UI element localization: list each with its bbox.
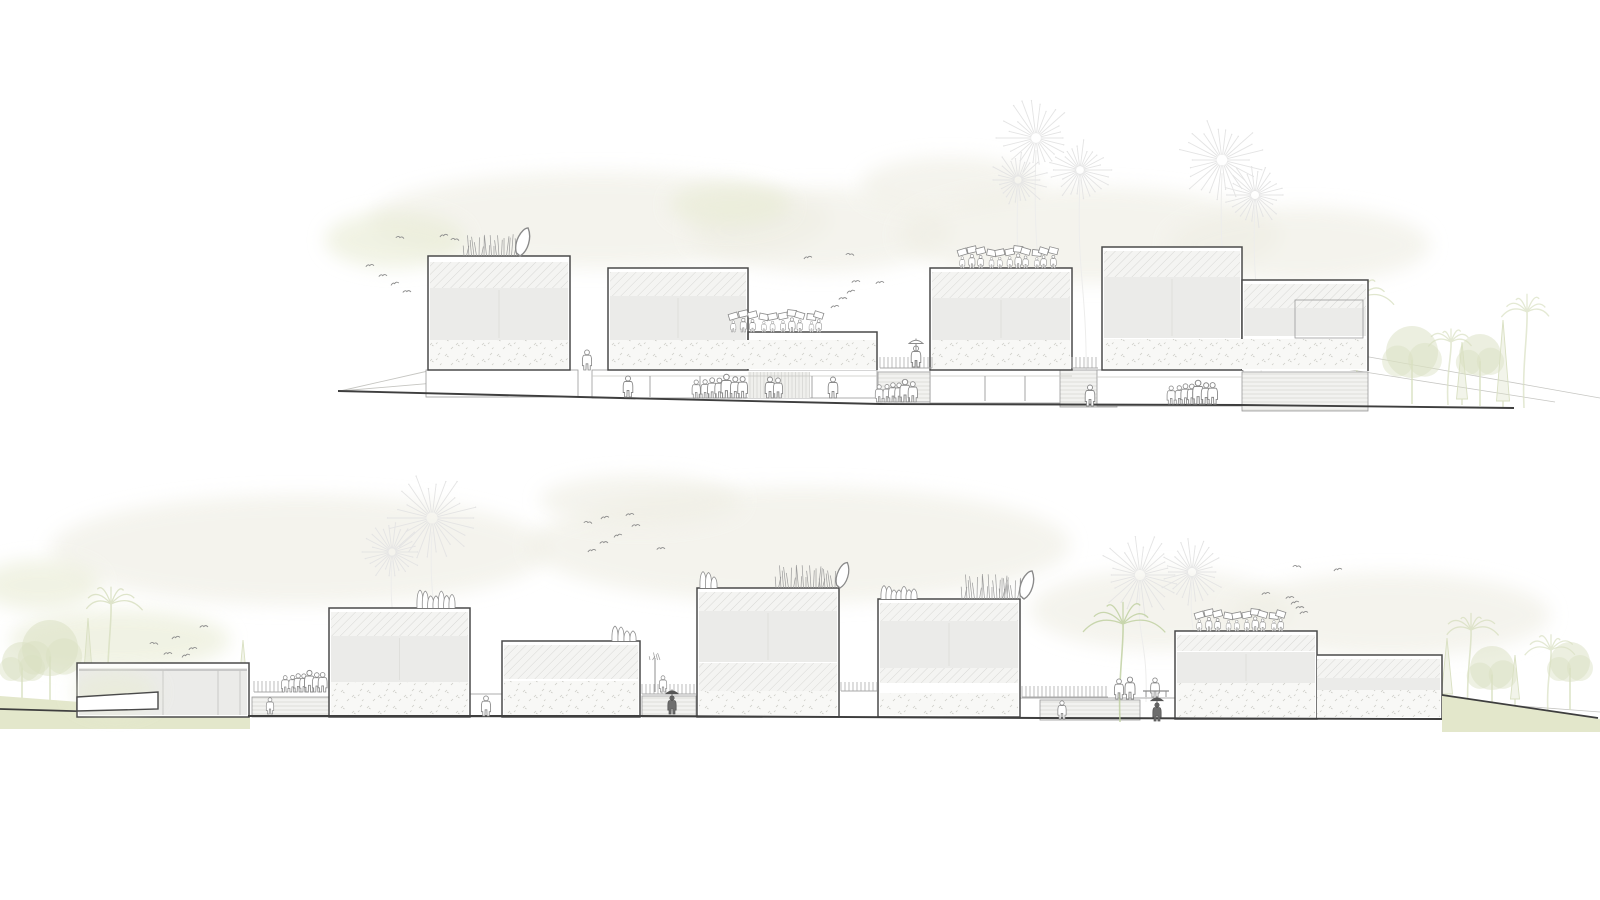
roof-parapet-band — [880, 668, 1018, 683]
background-wash — [540, 475, 740, 525]
bird-icon — [379, 275, 387, 277]
textured-facade-band — [1317, 690, 1440, 717]
roof-parapet-band — [880, 603, 1018, 621]
person-figure — [281, 676, 288, 692]
roof-parapet-band — [699, 663, 837, 691]
tree-icon — [0, 642, 45, 706]
sunken-wall — [252, 697, 330, 717]
top-elevation — [325, 100, 1600, 411]
textured-facade-band — [1177, 683, 1315, 717]
facade-panel — [1317, 678, 1440, 690]
person-figure — [1151, 678, 1160, 697]
textured-facade-band — [430, 340, 568, 369]
roof-figures-with-placards — [728, 310, 824, 332]
person-figure — [318, 673, 327, 692]
roof-parapet-band — [699, 592, 837, 611]
background-wash — [670, 183, 790, 227]
tree-icon — [1382, 326, 1442, 404]
textured-facade-band — [504, 681, 638, 715]
tree-icon — [1467, 646, 1518, 706]
people-group — [281, 670, 327, 692]
bird-icon — [1293, 565, 1301, 569]
bird-icon — [403, 290, 411, 292]
person-figure — [816, 320, 822, 332]
person-figure — [770, 321, 775, 332]
grass-berm — [1442, 695, 1600, 732]
roof-parapet-band — [331, 612, 468, 636]
roof-parapet-band — [504, 645, 638, 679]
roof-parapet-band — [1244, 284, 1366, 308]
bird-icon — [391, 282, 399, 286]
roof-parapet-band — [1317, 659, 1440, 678]
person-figure — [797, 320, 803, 332]
textured-facade-band — [331, 682, 468, 715]
textured-facade-band — [880, 693, 1018, 715]
person-with-umbrella-figure — [1151, 696, 1163, 721]
roof-parapet-band — [1177, 635, 1315, 651]
person-figure — [582, 350, 591, 370]
roof-parapet-band — [610, 272, 746, 296]
fence — [254, 681, 284, 692]
tree-icon — [1547, 642, 1593, 710]
roof-parapet-band — [430, 262, 568, 288]
textured-facade-band — [610, 340, 876, 369]
textured-facade-band — [699, 691, 837, 715]
bird-icon — [839, 297, 847, 299]
bottom-elevation — [0, 475, 1600, 732]
sunken-wall — [1040, 700, 1140, 720]
bird-icon — [831, 305, 839, 308]
person-figure — [750, 319, 756, 332]
person-figure — [659, 676, 666, 692]
facade-panel — [1244, 308, 1366, 336]
textured-facade-band — [1104, 339, 1366, 369]
person-figure — [1125, 677, 1135, 699]
bird-icon — [876, 281, 884, 283]
person-figure — [809, 321, 814, 332]
detail-line — [340, 371, 428, 391]
person-figure — [761, 321, 766, 332]
architectural-elevation-sheet — [0, 0, 1600, 900]
roof-shrubs — [612, 626, 636, 641]
bird-icon — [847, 290, 855, 294]
bird-icon — [1334, 568, 1342, 571]
fence — [880, 357, 932, 368]
fence — [841, 682, 877, 691]
bird-icon — [852, 281, 860, 283]
textured-facade-band — [932, 340, 1070, 369]
person-figure — [789, 318, 796, 332]
roof-planting — [649, 652, 660, 660]
person-figure — [780, 320, 785, 332]
fence — [1022, 686, 1108, 697]
roof-parapet-band — [932, 272, 1070, 298]
background-wash — [50, 495, 550, 605]
elevation-drawing — [0, 0, 1600, 900]
fence — [1072, 357, 1098, 368]
building-base — [930, 370, 1072, 403]
roof-parapet-band — [1104, 251, 1240, 277]
